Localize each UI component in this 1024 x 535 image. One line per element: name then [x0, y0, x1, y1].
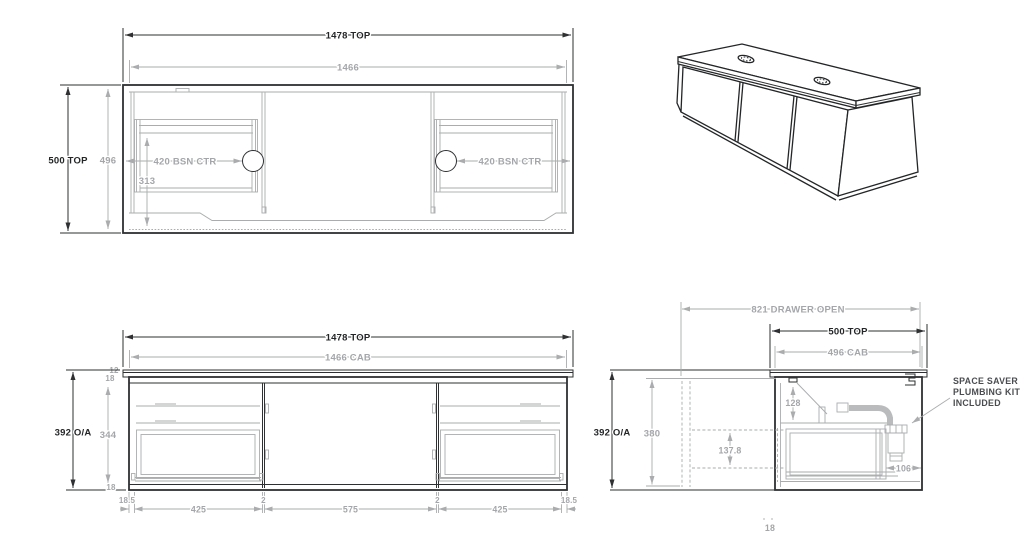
- plan-depth-top-dim: 500 TOP: [48, 156, 88, 167]
- technical-drawing-canvas: 1478 TOP 1466 500 TOP 496 313 420 BSN CT…: [0, 0, 1024, 535]
- plan-view: 1478 TOP 1466 500 TOP 496 313 420 BSN CT…: [48, 28, 573, 233]
- plan-drain-hole-left: [243, 151, 264, 172]
- side-note-line-1: SPACE SAVER: [953, 376, 1018, 386]
- side-drawer-open-dim: 821 DRAWER OPEN: [751, 305, 844, 316]
- plan-basin-ctr-left-dim: 420 BSN CTR: [154, 157, 217, 168]
- front-door-height-dim: 344: [100, 430, 117, 441]
- side-outlet-drop-dim: 128: [785, 398, 800, 408]
- front-door-middle-dim: 575: [343, 505, 358, 515]
- side-depth-cab-dim: 496 CAB: [828, 348, 868, 359]
- side-note-line-2: PLUMBING KIT: [953, 387, 1020, 397]
- side-trap-clearance-dim: 106: [896, 464, 911, 474]
- side-note-line-3: INCLUDED: [953, 398, 1001, 408]
- side-drawer-depth-dim: 137.8: [718, 446, 741, 456]
- front-cabinet-body: [129, 377, 567, 490]
- front-countertop: [123, 370, 573, 377]
- plan-basin-setback-dim: 313: [139, 176, 155, 187]
- front-bottom-rail-dim: 18: [106, 483, 116, 492]
- front-door-left-dim: 425: [191, 505, 206, 515]
- plan-basin-ctr-right-dim: 420 BSN CTR: [479, 157, 542, 168]
- plan-drain-hole-right: [436, 151, 457, 172]
- side-bottom-rail-dim: 18: [765, 523, 775, 533]
- iso-view: [677, 44, 920, 200]
- front-margin-left-dim: 18.5: [119, 496, 136, 505]
- plan-width-top-dim: 1478 TOP: [326, 31, 371, 42]
- side-depth-top-dim: 500 TOP: [828, 327, 868, 338]
- front-door-right-dim: 425: [492, 505, 507, 515]
- front-width-top-dim: 1478 TOP: [326, 333, 371, 344]
- side-height-overall-dim: 392 O/A: [594, 428, 631, 439]
- side-internal-height-dim: 380: [644, 429, 660, 440]
- drawing-sheet: 1478 TOP 1466 500 TOP 496 313 420 BSN CT…: [0, 0, 1024, 535]
- front-width-cab-dim: 1466 CAB: [325, 353, 371, 364]
- plan-depth-cab-dim: 496: [100, 156, 116, 167]
- front-height-overall-dim: 392 O/A: [55, 428, 92, 439]
- side-open-drawer-dashed: [682, 381, 786, 487]
- front-margin-right-dim: 18.5: [561, 496, 578, 505]
- side-view: 821 DRAWER OPEN 500 TOP 496 CAB 392 O/A …: [594, 302, 1021, 533]
- side-note: SPACE SAVER PLUMBING KIT INCLUDED: [912, 376, 1020, 423]
- front-view: 1478 TOP 1466 CAB 12 18 392 O/A 344 18: [55, 330, 578, 515]
- front-top-rail-dim: 18: [105, 374, 115, 383]
- front-gap-left-dim: 2: [261, 496, 266, 505]
- front-gap-right-dim: 2: [435, 496, 440, 505]
- side-countertop: [770, 370, 927, 377]
- plan-width-cab-dim: 1466: [337, 63, 359, 74]
